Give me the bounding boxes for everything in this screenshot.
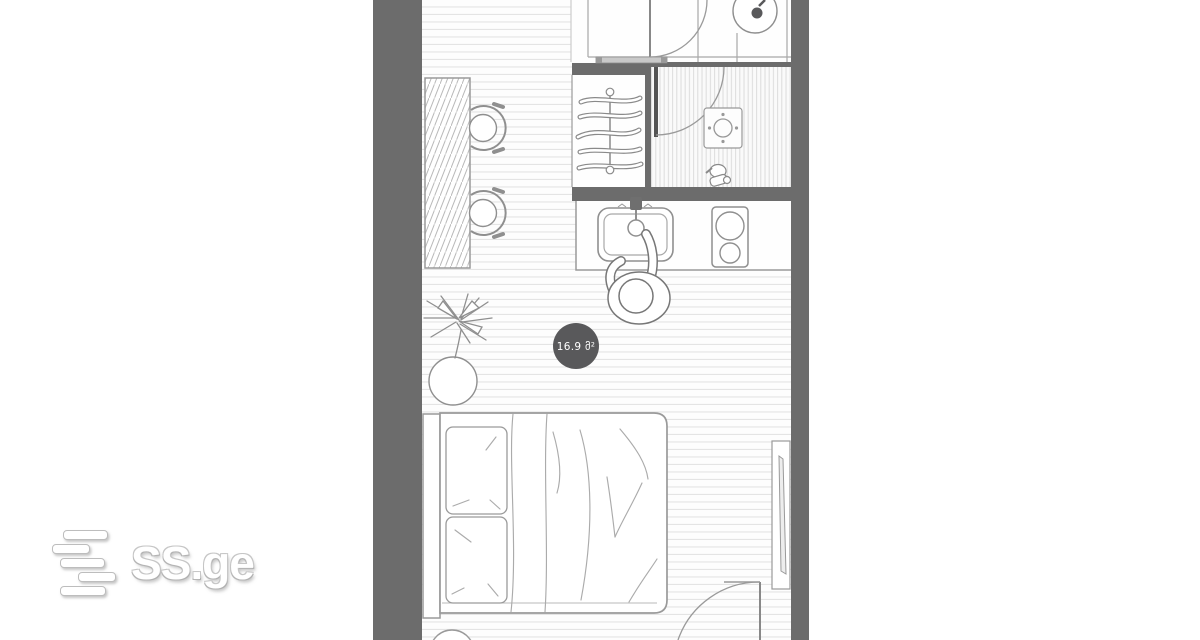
faucet bbox=[630, 197, 642, 210]
radiator bbox=[772, 441, 790, 589]
stove bbox=[712, 207, 748, 267]
burner-small bbox=[720, 243, 740, 263]
dining-table bbox=[425, 78, 470, 268]
logo-bar bbox=[78, 572, 116, 582]
logo-bar bbox=[63, 530, 108, 540]
logo-bar bbox=[60, 586, 106, 596]
plant-pot bbox=[429, 357, 477, 405]
bathroom-door-leaf bbox=[654, 67, 658, 137]
burner-large bbox=[716, 212, 744, 240]
shower-drain bbox=[704, 108, 742, 148]
wall-bathroom-top bbox=[650, 62, 791, 67]
head bbox=[619, 279, 653, 313]
bed bbox=[423, 413, 667, 618]
wall-wardrobe-top bbox=[572, 63, 651, 75]
brand-name: SS.ge bbox=[131, 540, 254, 600]
logo-bar bbox=[60, 558, 105, 568]
screenshot: 16.9 მ² SS.ge bbox=[0, 0, 1200, 640]
area-label: 16.9 მ² bbox=[557, 341, 596, 353]
headboard bbox=[423, 414, 440, 618]
ssge-watermark: SS.ge bbox=[52, 530, 254, 600]
area-badge: 16.9 მ² bbox=[553, 323, 599, 369]
wall-wardrobe-divider bbox=[645, 75, 651, 188]
logo-bar bbox=[52, 544, 90, 554]
wall-bathroom-bottom bbox=[572, 187, 809, 201]
shelf bbox=[596, 57, 667, 63]
pillow-1 bbox=[446, 427, 507, 514]
ssge-logo-icon bbox=[52, 530, 116, 600]
wall-right bbox=[791, 0, 809, 640]
wall-left bbox=[373, 0, 422, 640]
